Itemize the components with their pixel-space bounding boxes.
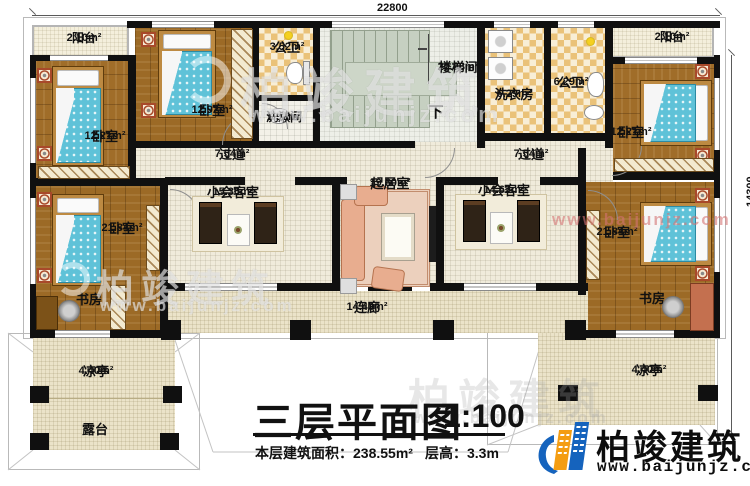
sofa-side-table [340,184,357,200]
nightstand [37,268,52,283]
wardrobe [614,158,714,172]
desk-chair [662,296,684,318]
watermark-ring [183,56,231,104]
sofa-seat [371,266,406,292]
french-window [464,283,536,291]
floor-area-value: 本层建筑面积：238.55m² [255,443,413,463]
room-area: 6.29m² [554,77,589,88]
room-area: 12.92m² [192,105,233,116]
armchair [199,202,222,244]
room-area: 21.84m² [102,223,143,234]
column [161,320,181,340]
wall [436,177,444,283]
wall [135,141,415,148]
stair-direction-tick [418,48,427,50]
room-area: 4.40m² [79,366,114,377]
armchair [463,200,486,242]
window [625,57,697,64]
nightstand [695,64,710,79]
room-area: 14.62m² [484,185,525,196]
column [160,433,179,450]
window [494,21,530,28]
room-area: 6.29m² [497,89,532,100]
nightstand [141,32,156,47]
room-name: 露台 [82,423,108,436]
pillow [57,198,99,213]
watermark-text: www.baijunjz.com [100,296,295,316]
wall [540,177,586,185]
floor-height-value: 层高：3.3m [425,443,499,463]
dimension-value: 22800 [377,2,408,14]
washing-machine [488,30,513,53]
room-area: 2.10m² [655,32,690,43]
nightstand [695,188,710,203]
room-area: 7.54m² [215,149,250,160]
dimension-line-right [731,55,732,435]
wardrobe [38,166,130,179]
window [55,330,110,338]
room-area: 14.40m² [347,302,388,313]
pillow [163,34,211,49]
washing-machine [488,57,513,80]
column [565,320,586,340]
nightstand [695,266,710,281]
window [714,78,720,150]
wall [613,172,720,180]
wall [30,178,168,186]
company-logo-icon [534,416,592,478]
room-area: 19.60m² [370,178,411,189]
table-plant [234,226,242,234]
dimension-label-right: 14300 [745,177,750,237]
sofa-side-table [340,278,357,294]
watermark-text: www.baijunjz.com [552,210,731,230]
room-area: 2.10m² [67,33,102,44]
column [433,320,454,340]
window [30,198,36,284]
room-area: 7.54m² [514,149,549,160]
dimension-line-top [32,15,720,16]
window [50,55,108,61]
column [30,386,49,403]
nightstand [37,146,52,161]
armchair [517,200,540,242]
floor-plan-canvas: 阳台 2.10m² 阳台 2.10m² 卧室 12.21m² 卧室 12.92m… [0,0,750,486]
wall [480,133,613,141]
room-area: 12.21m² [85,131,126,142]
nightstand [37,68,52,83]
wall [332,177,340,283]
column [698,385,718,401]
window [332,21,444,28]
room-area: 4.40m² [632,365,667,376]
window [152,21,214,28]
room-area: 12.21m² [611,127,652,138]
nightstand [141,103,156,118]
scale-text: 1:100 [443,398,525,435]
washbasin [584,105,604,120]
coffee-table [381,213,415,261]
bed [52,66,104,166]
room-area: 15.30m² [213,187,254,198]
window [616,330,674,338]
wall [165,177,245,185]
pillow [57,70,99,86]
room-name: 书房 [639,292,665,305]
column [30,433,49,450]
nightstand [37,192,52,207]
pillow [694,85,708,141]
company-site-text: www.baijunjz.com [597,458,750,476]
title-underline [253,433,505,436]
armchair [254,202,277,244]
column [290,320,311,340]
watermark-ring [56,262,90,296]
dimension-label-top: 22800 [346,2,408,15]
desk [36,296,58,330]
faucet-light [284,31,293,40]
tv [429,206,436,262]
window [30,78,36,163]
faucet-light [586,37,595,46]
title-text: 三层平面图 [253,390,463,448]
column [163,386,182,403]
toilet [587,72,604,97]
desk [690,283,714,331]
window [558,21,594,28]
wall [544,21,551,141]
table-plant [497,224,505,232]
dimension-value: 14300 [745,176,750,207]
sofa-main [341,199,365,281]
watermark-text: www.baijunjz.com [248,102,502,128]
